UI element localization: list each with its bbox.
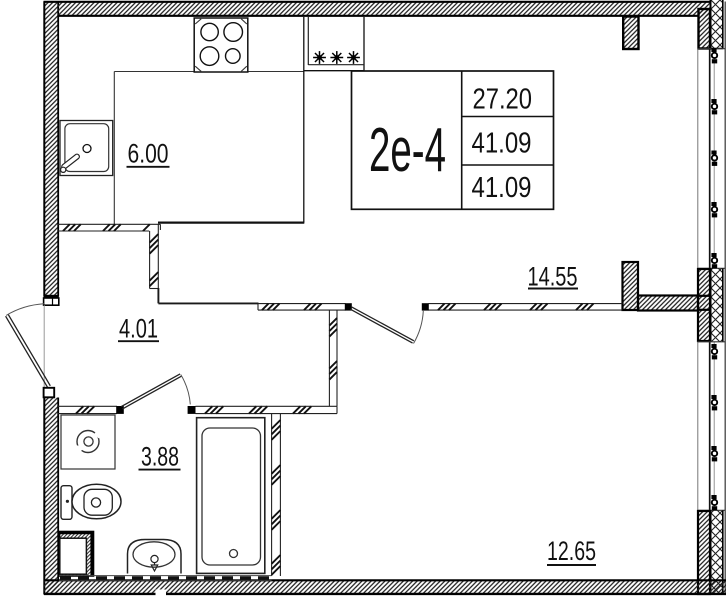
svg-text:2е-4: 2е-4 (369, 116, 446, 185)
svg-text:4.01: 4.01 (119, 314, 158, 344)
svg-text:12.65: 12.65 (547, 536, 596, 566)
svg-text:41.09: 41.09 (472, 172, 532, 204)
svg-text:41.09: 41.09 (472, 128, 532, 160)
svg-text:3.88: 3.88 (141, 442, 179, 472)
svg-text:27.20: 27.20 (473, 84, 533, 116)
svg-text:14.55: 14.55 (528, 262, 578, 292)
svg-text:6.00: 6.00 (128, 139, 169, 169)
